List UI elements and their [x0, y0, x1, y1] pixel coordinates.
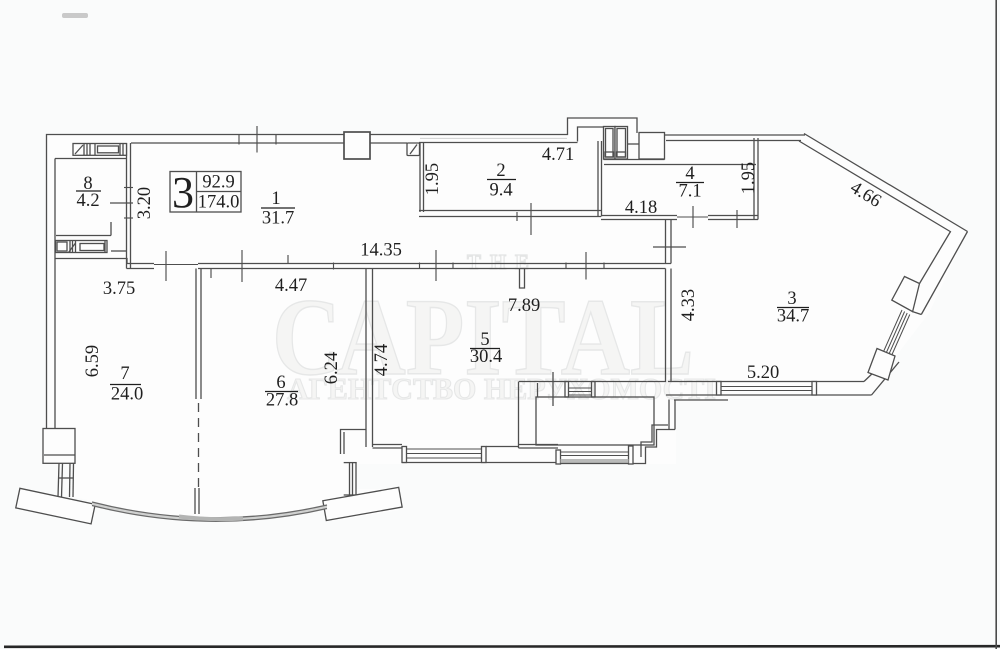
- svg-text:1.95: 1.95: [739, 162, 759, 194]
- svg-text:27.8: 27.8: [266, 391, 298, 411]
- svg-text:14.35: 14.35: [360, 241, 402, 261]
- svg-text:1: 1: [271, 189, 280, 209]
- svg-text:6.59: 6.59: [83, 345, 103, 377]
- svg-text:7.89: 7.89: [508, 296, 540, 316]
- svg-text:4.33: 4.33: [679, 289, 699, 321]
- svg-text:92.9: 92.9: [202, 173, 234, 193]
- svg-text:2: 2: [496, 161, 505, 181]
- svg-text:4.18: 4.18: [625, 198, 657, 218]
- svg-text:30.4: 30.4: [470, 347, 502, 367]
- svg-text:АГЕНТСТВО НЕРУХОМОСТІ: АГЕНТСТВО НЕРУХОМОСТІ: [287, 371, 716, 406]
- svg-text:7.1: 7.1: [678, 182, 701, 202]
- svg-text:3: 3: [172, 168, 194, 217]
- svg-text:3.75: 3.75: [103, 279, 135, 299]
- svg-text:9.4: 9.4: [489, 181, 512, 201]
- svg-text:1.95: 1.95: [423, 163, 443, 195]
- svg-text:4.71: 4.71: [542, 145, 574, 165]
- svg-text:6.24: 6.24: [322, 352, 342, 384]
- svg-text:34.7: 34.7: [777, 307, 809, 327]
- svg-text:5.20: 5.20: [747, 363, 779, 383]
- svg-text:174.0: 174.0: [198, 193, 240, 213]
- svg-text:7: 7: [120, 364, 129, 384]
- svg-text:3.20: 3.20: [135, 187, 155, 219]
- svg-text:24.0: 24.0: [111, 385, 143, 405]
- svg-text:4.47: 4.47: [275, 276, 307, 296]
- svg-text:4.2: 4.2: [76, 191, 99, 211]
- svg-text:31.7: 31.7: [262, 209, 294, 229]
- svg-text:4.74: 4.74: [372, 344, 392, 376]
